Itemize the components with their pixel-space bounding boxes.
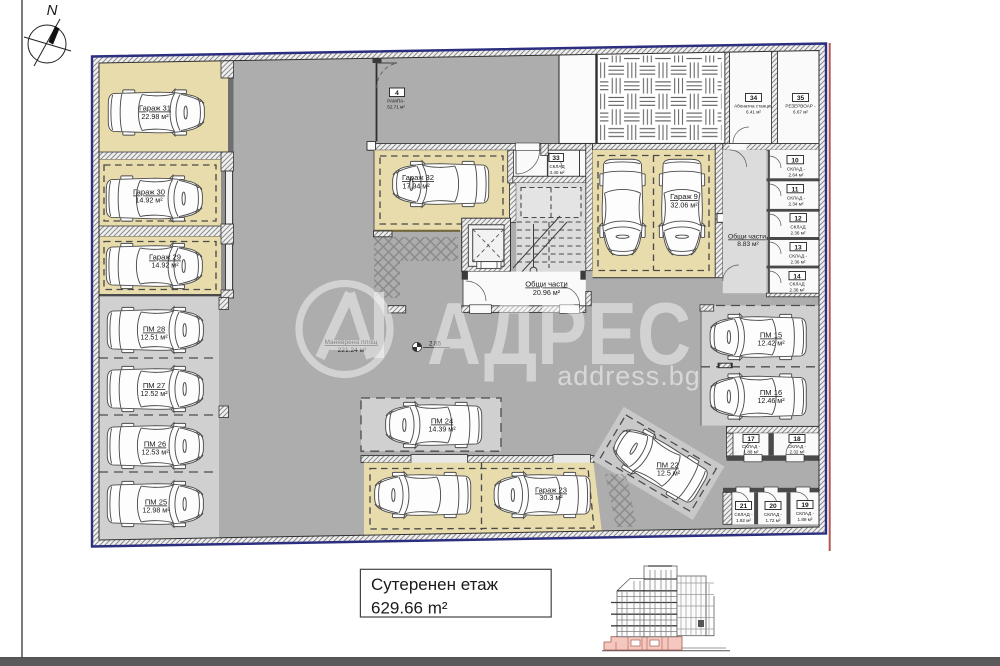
svg-text:20: 20 — [769, 503, 777, 510]
svg-text:13: 13 — [794, 244, 802, 251]
svg-text:17: 17 — [747, 436, 755, 443]
svg-text:6.67 м²: 6.67 м² — [793, 110, 808, 115]
svg-text:address.bg: address.bg — [557, 361, 701, 391]
svg-text:17.94 м²: 17.94 м² — [402, 182, 430, 191]
svg-text:2.36 м²: 2.36 м² — [791, 260, 806, 265]
svg-text:14: 14 — [793, 273, 801, 280]
svg-text:СКЛАД -: СКЛАД - — [787, 167, 806, 172]
svg-text:2.64 м²: 2.64 м² — [789, 173, 804, 178]
svg-text:12.52 м²: 12.52 м² — [140, 389, 168, 398]
svg-text:2.32 м²: 2.32 м² — [790, 449, 805, 454]
svg-text:32.06 м²: 32.06 м² — [670, 201, 698, 210]
svg-text:34: 34 — [750, 95, 758, 102]
svg-text:СКЛАД: СКЛАД — [549, 164, 565, 169]
svg-text:СКЛАД -: СКЛАД - — [796, 511, 815, 516]
svg-text:РЕЗЕРВОАР -: РЕЗЕРВОАР - — [785, 104, 816, 109]
svg-text:22.98 м²: 22.98 м² — [141, 112, 169, 121]
svg-text:12.5 м²: 12.5 м² — [657, 469, 681, 478]
svg-text:СКЛАД: СКЛАД — [790, 225, 806, 230]
svg-text:1.72 м²: 1.72 м² — [766, 518, 781, 523]
svg-text:Общи части: Общи части — [728, 233, 766, 241]
svg-text:18: 18 — [793, 436, 801, 443]
svg-text:N: N — [47, 2, 58, 19]
svg-text:12.42 м²: 12.42 м² — [757, 339, 785, 348]
svg-text:629.66 m²: 629.66 m² — [371, 599, 448, 618]
svg-text:2.36 м²: 2.36 м² — [791, 231, 806, 236]
svg-text:12.53 м²: 12.53 м² — [141, 448, 169, 457]
svg-text:1.89 м²: 1.89 м² — [798, 517, 813, 522]
svg-text:35: 35 — [797, 95, 805, 102]
svg-text:12.51 м²: 12.51 м² — [140, 333, 168, 342]
svg-text:8.83 м²: 8.83 м² — [737, 241, 759, 248]
svg-text:Сутеренен етаж: Сутеренен етаж — [371, 575, 499, 594]
svg-text:33: 33 — [552, 155, 560, 162]
svg-text:СКЛАД -: СКЛАД - — [734, 512, 753, 517]
svg-text:1.88 м²: 1.88 м² — [744, 449, 759, 454]
svg-text:1.92 м²: 1.92 м² — [736, 518, 751, 523]
svg-text:СКЛАД: СКЛАД — [789, 282, 805, 287]
svg-text:РАМПА-: РАМПА- — [387, 99, 405, 104]
svg-text:14.92 м²: 14.92 м² — [135, 196, 163, 205]
svg-text:СКЛАД -: СКЛАД - — [788, 444, 807, 449]
svg-text:12.46 м²: 12.46 м² — [757, 396, 785, 405]
svg-text:Абонатна станция: Абонатна станция — [734, 104, 773, 109]
svg-text:30.3 м²: 30.3 м² — [539, 493, 563, 502]
svg-text:11: 11 — [792, 186, 799, 193]
svg-text:52.71 м²: 52.71 м² — [387, 105, 405, 110]
svg-text:2.34 м²: 2.34 м² — [789, 202, 804, 207]
svg-text:21: 21 — [740, 503, 748, 510]
svg-text:6.41 м²: 6.41 м² — [746, 110, 761, 115]
svg-text:СКЛАД -: СКЛАД - — [789, 254, 808, 259]
svg-text:СКЛАД -: СКЛАД - — [742, 444, 761, 449]
svg-text:СКЛАД -: СКЛАД - — [764, 512, 783, 517]
svg-text:СКЛАД -: СКЛАД - — [787, 196, 806, 201]
svg-text:12: 12 — [794, 215, 802, 222]
svg-text:2.36 м²: 2.36 м² — [790, 288, 805, 293]
svg-text:10: 10 — [791, 157, 799, 164]
svg-text:14.39 м²: 14.39 м² — [428, 425, 456, 434]
svg-text:4: 4 — [395, 90, 399, 97]
svg-text:12.98 м²: 12.98 м² — [142, 506, 170, 515]
svg-text:3.40 м²: 3.40 м² — [550, 170, 565, 175]
svg-text:19: 19 — [801, 502, 809, 509]
svg-text:14.92 м²: 14.92 м² — [151, 261, 179, 270]
